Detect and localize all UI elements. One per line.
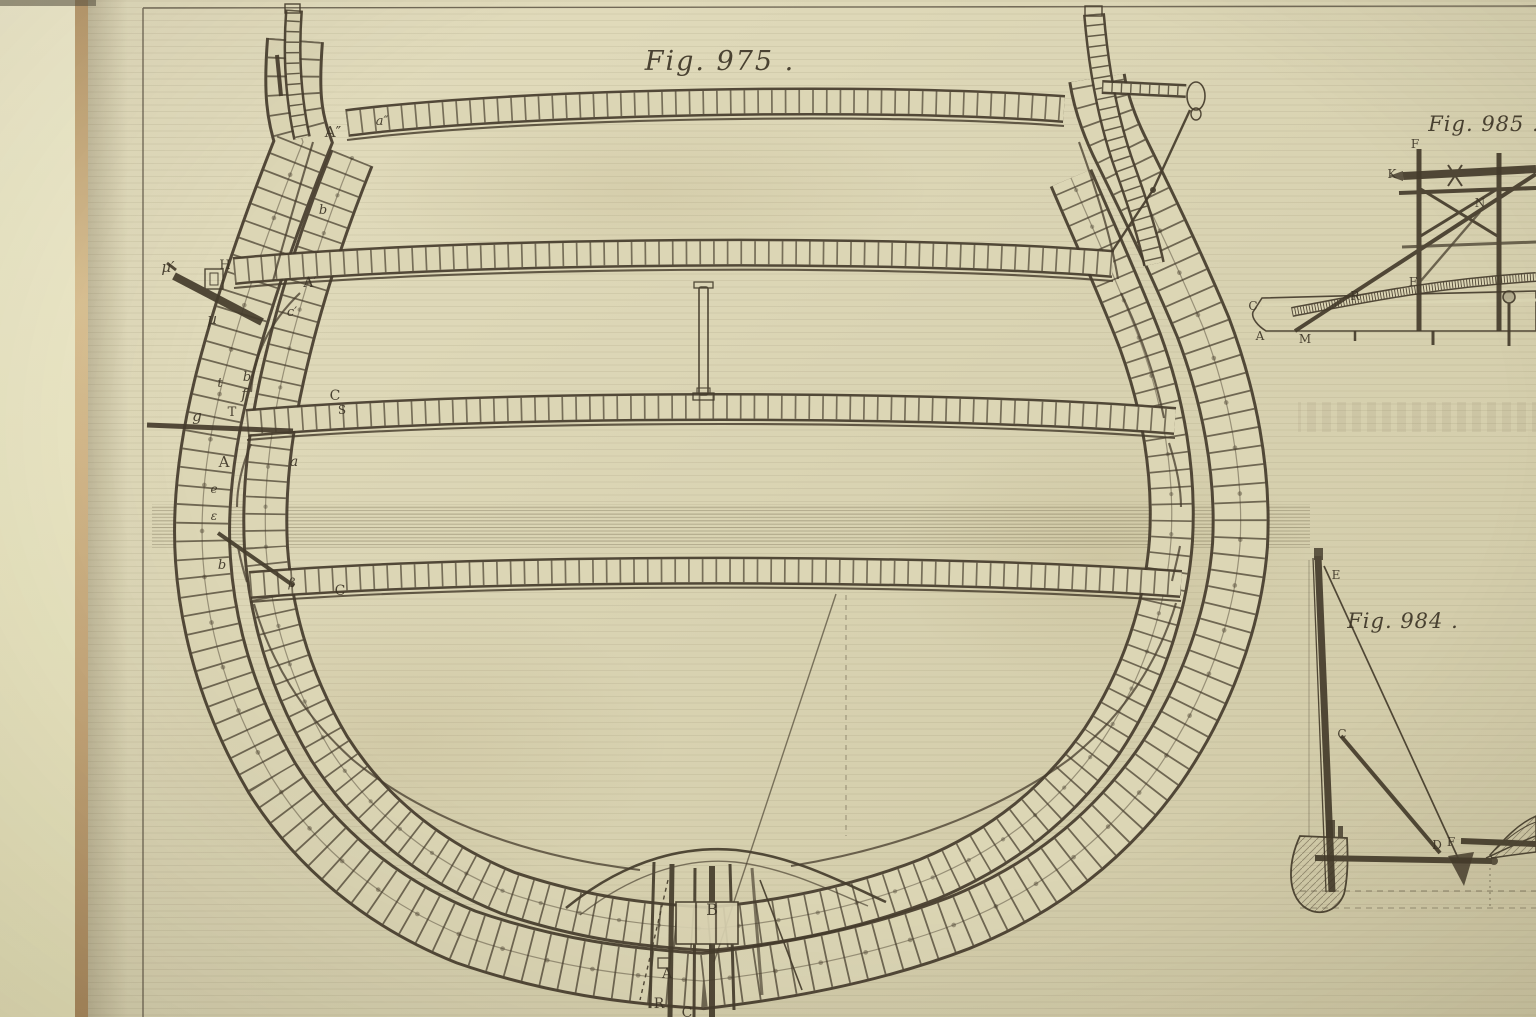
label-A-prime: A′ [302, 275, 316, 291]
label-C: C [1248, 299, 1257, 313]
label-a-doubleprime: a″ [376, 114, 389, 129]
label-B-keel: B [706, 900, 718, 919]
label-A: A [1255, 329, 1265, 343]
label-t: t [217, 376, 223, 391]
label-g: g [192, 407, 202, 425]
label-S: S [338, 403, 346, 417]
print-show-through [1298, 392, 1536, 434]
label-F-deck: F [1409, 275, 1417, 289]
label-F-top: F [1411, 137, 1419, 151]
photo-top-shadow [0, 0, 96, 6]
label-b1: b [243, 370, 251, 385]
engraved-plate-svg: Fig. 975 . Fig. 985 . Fig. 984 . A″ a″ b… [0, 0, 1536, 1017]
label-c-prime: c′ [287, 305, 297, 320]
fig975-title: Fig. 975 . [644, 46, 796, 77]
label-e: e [210, 482, 217, 496]
label-A-keel: A [661, 966, 673, 982]
label-T: T [228, 405, 237, 420]
label-E: E [1332, 568, 1341, 582]
label-F: F [1447, 835, 1455, 849]
label-mu: µ [207, 310, 217, 328]
label-A-mid: A [218, 453, 230, 471]
photo-of-engraved-plate: Fig. 975 . Fig. 985 . Fig. 984 . A″ a″ b… [0, 0, 1536, 1017]
label-C-upper: C [330, 388, 341, 404]
fig985-title: Fig. 985 . [1427, 112, 1536, 136]
label-A-doubleprime: A″ [324, 123, 342, 141]
label-C: C [1337, 727, 1346, 741]
label-C-keel: C [682, 1005, 693, 1017]
label-R: R [1350, 289, 1360, 303]
label-R-keel: R [654, 996, 665, 1012]
label-a-mid: a [290, 454, 298, 470]
label-epsilon: ε [211, 509, 217, 523]
label-mu-prime: µ′ [161, 258, 175, 276]
label-C-lower: C [335, 583, 346, 599]
label-b-top: b [319, 203, 327, 218]
page-edge-strip [75, 0, 89, 1017]
label-beta: β [288, 576, 296, 590]
label-H: H [219, 258, 230, 273]
label-K: K [1388, 167, 1398, 181]
fig984-title: Fig. 984 . [1346, 609, 1459, 633]
hold-hatching [152, 504, 1310, 548]
label-N: N [1475, 196, 1486, 210]
label-D: D [1432, 838, 1442, 852]
label-b2: b [218, 558, 226, 573]
label-M: M [1299, 332, 1311, 346]
